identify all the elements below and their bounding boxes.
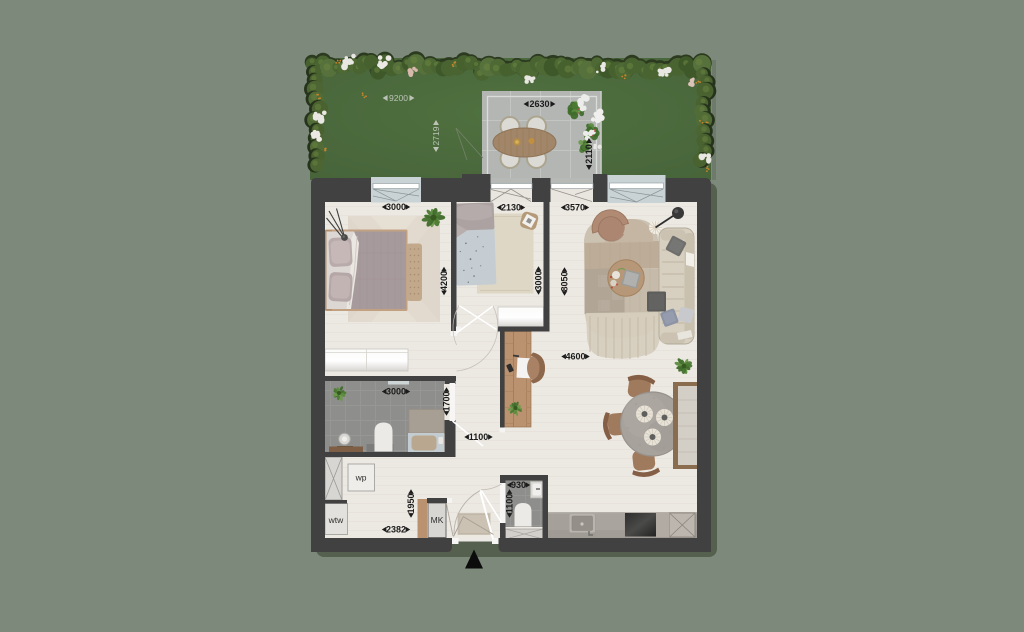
svg-text:1700: 1700 [442,391,452,411]
svg-text:wp: wp [355,473,367,483]
svg-text:4200: 4200 [439,271,449,291]
svg-text:3570: 3570 [565,203,585,213]
svg-text:2719: 2719 [431,126,441,145]
svg-text:4600: 4600 [565,352,585,362]
svg-text:2382: 2382 [386,525,406,535]
svg-text:9200: 9200 [389,93,408,103]
svg-text:3000: 3000 [534,270,544,290]
svg-text:1950: 1950 [406,493,416,513]
svg-text:1100: 1100 [469,432,489,442]
svg-text:2630: 2630 [529,99,549,109]
svg-text:3000: 3000 [386,202,406,212]
svg-text:MK: MK [431,515,444,525]
svg-text:wtw: wtw [328,515,345,525]
svg-text:930: 930 [511,480,526,490]
svg-text:1100: 1100 [505,494,515,514]
svg-text:8050: 8050 [560,271,570,291]
svg-text:2130: 2130 [501,203,521,213]
svg-text:3000: 3000 [386,387,406,397]
svg-text:2110: 2110 [584,144,594,164]
